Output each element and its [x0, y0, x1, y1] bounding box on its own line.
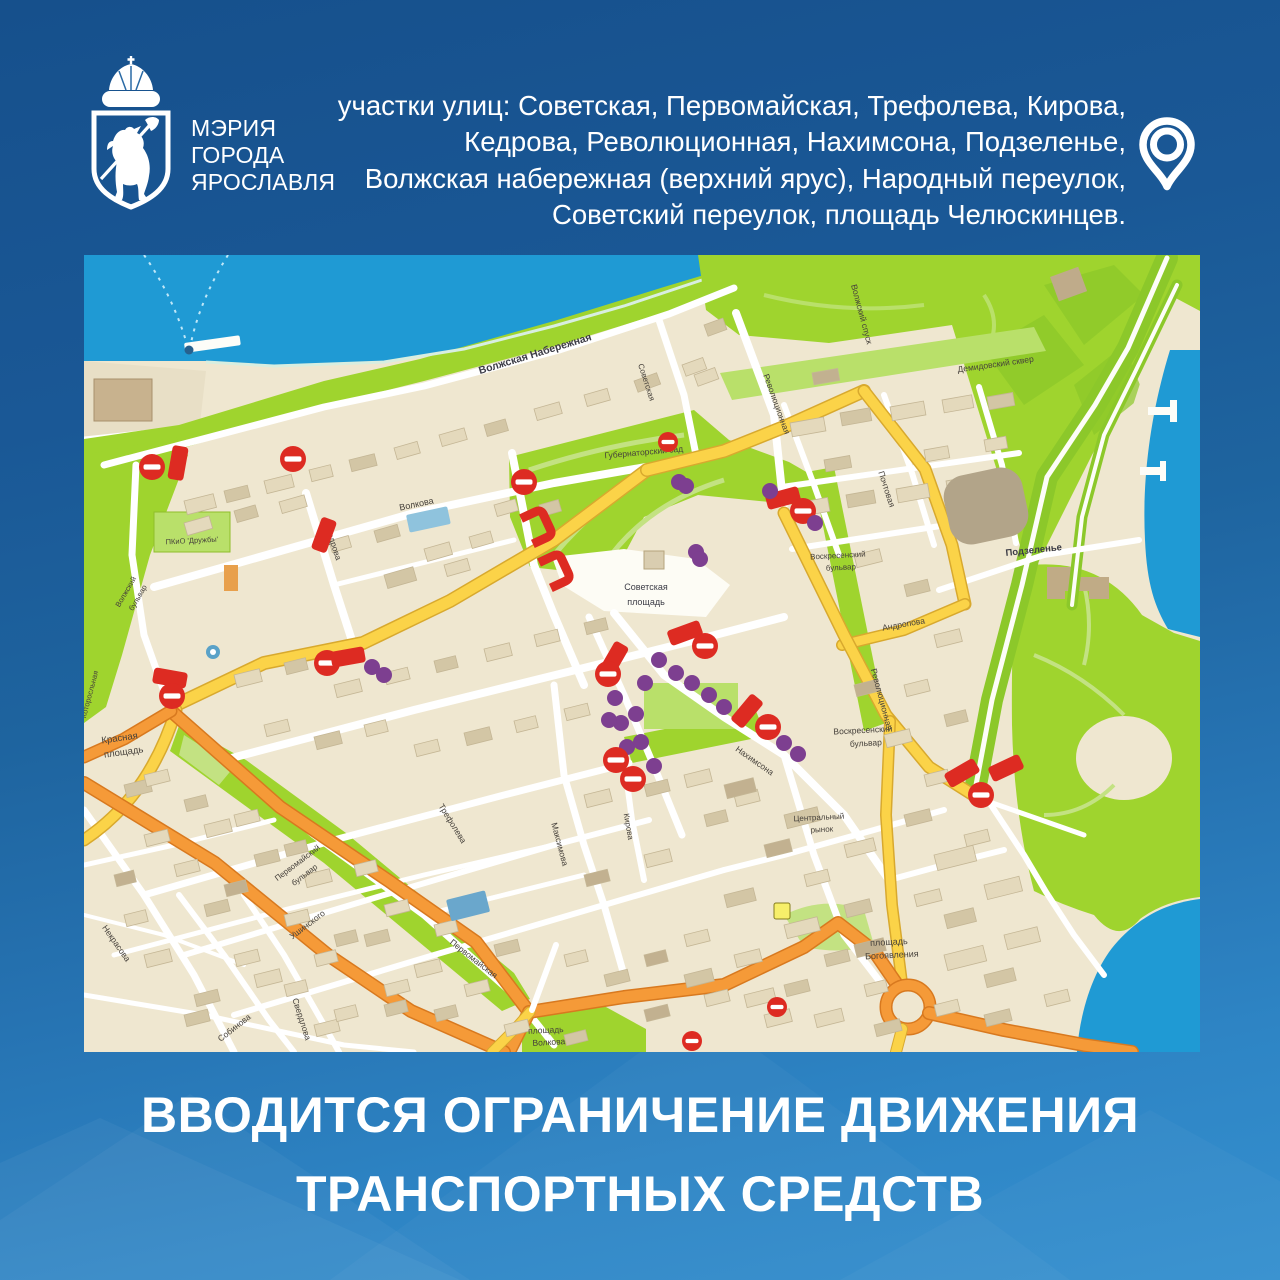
- svg-text:Советская: Советская: [624, 582, 668, 592]
- svg-text:рынок: рынок: [810, 824, 834, 834]
- svg-text:бульвар: бульвар: [826, 562, 857, 573]
- svg-text:площадь: площадь: [627, 597, 665, 607]
- svg-text:площадь: площадь: [528, 1024, 565, 1036]
- svg-text:бульвар: бульвар: [850, 737, 883, 749]
- svg-text:площадь: площадь: [870, 936, 908, 948]
- svg-text:Волкова: Волкова: [532, 1036, 566, 1048]
